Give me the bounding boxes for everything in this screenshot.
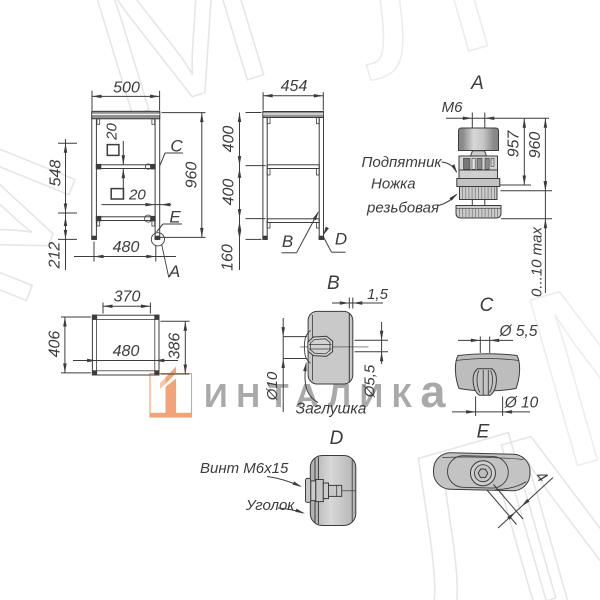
svg-text:454: 454 xyxy=(281,78,308,95)
svg-text:Подпятник: Подпятник xyxy=(362,154,443,171)
svg-text:A: A xyxy=(470,73,484,94)
svg-text:E: E xyxy=(477,422,490,443)
svg-text:960: 960 xyxy=(184,162,201,189)
svg-text:Л: Л xyxy=(315,0,517,124)
svg-text:406: 406 xyxy=(47,331,64,358)
svg-text:B: B xyxy=(282,232,293,251)
svg-text:500: 500 xyxy=(113,80,140,97)
svg-text:400: 400 xyxy=(221,179,238,206)
svg-text:20: 20 xyxy=(128,187,146,204)
svg-text:212: 212 xyxy=(47,242,64,270)
svg-text:Ø 5,5: Ø 5,5 xyxy=(499,323,538,340)
svg-text:370: 370 xyxy=(114,289,141,306)
svg-text:20: 20 xyxy=(104,123,121,141)
svg-text:0...10 max: 0...10 max xyxy=(529,226,546,297)
svg-text:M6: M6 xyxy=(442,99,463,116)
svg-text:Ø 10: Ø 10 xyxy=(504,395,539,412)
svg-text:Ножка: Ножка xyxy=(371,176,416,193)
svg-text:Уголок: Уголок xyxy=(245,497,295,514)
svg-text:1,5: 1,5 xyxy=(367,286,389,303)
svg-text:Винт М6х15: Винт М6х15 xyxy=(200,460,289,477)
svg-text:160: 160 xyxy=(220,244,237,271)
svg-text:960: 960 xyxy=(527,132,544,159)
svg-text:400: 400 xyxy=(221,126,238,153)
svg-text:Ø10: Ø10 xyxy=(264,371,281,401)
svg-text:480: 480 xyxy=(113,343,140,360)
svg-text:М: М xyxy=(0,99,120,331)
svg-text:386: 386 xyxy=(167,333,184,360)
svg-text:C: C xyxy=(480,295,494,316)
svg-text:A: A xyxy=(168,262,180,281)
svg-text:548: 548 xyxy=(48,160,65,187)
svg-text:резьбовая: резьбовая xyxy=(366,200,439,217)
svg-text:D: D xyxy=(330,428,344,449)
svg-text:Заглушка: Заглушка xyxy=(296,401,367,418)
svg-text:957: 957 xyxy=(506,130,523,158)
svg-text:B: B xyxy=(327,273,340,294)
svg-text:480: 480 xyxy=(113,239,140,256)
svg-text:D: D xyxy=(335,230,347,249)
svg-text:Ø5,5: Ø5,5 xyxy=(362,364,379,398)
